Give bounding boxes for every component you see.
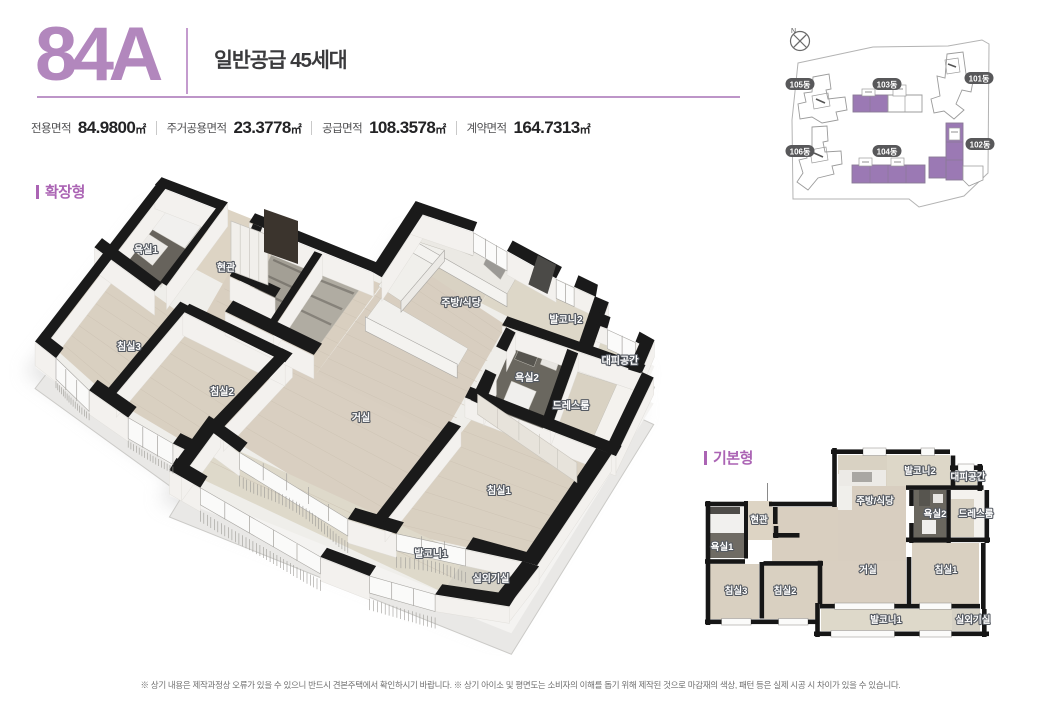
svg-text:발코니2: 발코니2 [549,313,583,326]
svg-text:102동: 102동 [970,141,991,150]
svg-text:104동: 104동 [877,148,898,157]
svg-text:욕실2: 욕실2 [515,371,539,384]
svg-text:실외기실: 실외기실 [473,572,510,585]
svg-text:욕실2: 욕실2 [924,508,947,520]
svg-text:N: N [791,28,796,35]
svg-text:106동: 106동 [790,148,811,157]
svg-text:현관: 현관 [750,514,768,526]
svg-text:침실3: 침실3 [117,340,141,353]
svg-text:거실: 거실 [859,564,877,576]
svg-text:주방/식당: 주방/식당 [441,296,481,309]
svg-text:침실3: 침실3 [725,585,748,597]
svg-text:발코니1: 발코니1 [870,614,902,626]
svg-text:욕실1: 욕실1 [134,243,158,256]
svg-text:침실1: 침실1 [935,564,958,576]
svg-text:침실2: 침실2 [774,585,797,597]
svg-text:거실: 거실 [352,411,370,424]
svg-text:대피공간: 대피공간 [602,354,640,367]
svg-text:101동: 101동 [969,75,990,84]
svg-text:발코니1: 발코니1 [414,547,448,560]
svg-text:105동: 105동 [790,81,811,90]
svg-text:욕실1: 욕실1 [711,541,734,553]
svg-text:103동: 103동 [877,81,898,90]
svg-text:현관: 현관 [217,261,236,274]
svg-text:발코니2: 발코니2 [904,465,936,477]
svg-text:침실2: 침실2 [210,385,234,398]
svg-text:드레스룸: 드레스룸 [959,508,994,520]
svg-text:주방/식당: 주방/식당 [856,495,894,507]
svg-text:실외기실: 실외기실 [956,614,991,626]
svg-text:대피공간: 대피공간 [951,471,986,483]
svg-text:침실1: 침실1 [487,484,511,497]
svg-text:드레스룸: 드레스룸 [553,399,590,412]
